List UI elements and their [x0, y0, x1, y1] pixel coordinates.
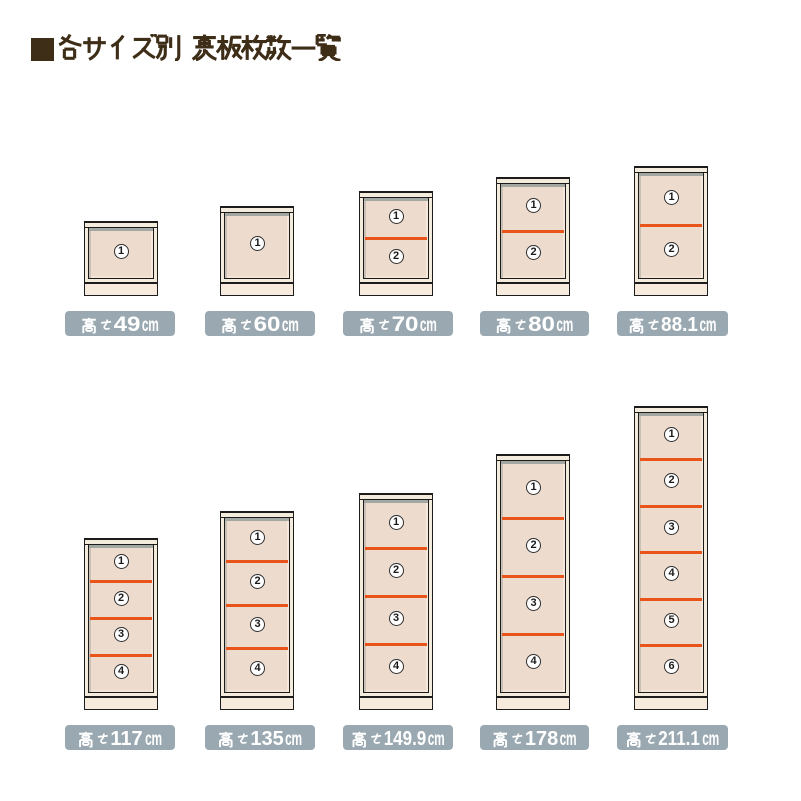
- svg-text:cm: cm: [702, 728, 719, 750]
- svg-text:cm: cm: [699, 314, 716, 336]
- svg-text:cm: cm: [556, 314, 573, 336]
- svg-text:211.1: 211.1: [658, 726, 700, 749]
- svg-text:cm: cm: [419, 314, 436, 336]
- svg-text:80: 80: [528, 312, 555, 335]
- svg-text:70: 70: [391, 312, 418, 335]
- svg-text:178: 178: [524, 728, 557, 750]
- svg-text:cm: cm: [282, 314, 299, 336]
- svg-text:cm: cm: [427, 728, 444, 750]
- svg-text:cm: cm: [285, 728, 302, 750]
- svg-text:117: 117: [110, 728, 142, 750]
- svg-text:135: 135: [250, 728, 283, 750]
- svg-text:cm: cm: [141, 314, 158, 336]
- svg-text:60: 60: [254, 312, 281, 335]
- svg-text:49: 49: [113, 312, 140, 335]
- svg-text:cm: cm: [559, 728, 576, 750]
- svg-text:88.1: 88.1: [661, 313, 698, 335]
- svg-text:149.9: 149.9: [383, 726, 426, 749]
- svg-text:cm: cm: [145, 728, 162, 750]
